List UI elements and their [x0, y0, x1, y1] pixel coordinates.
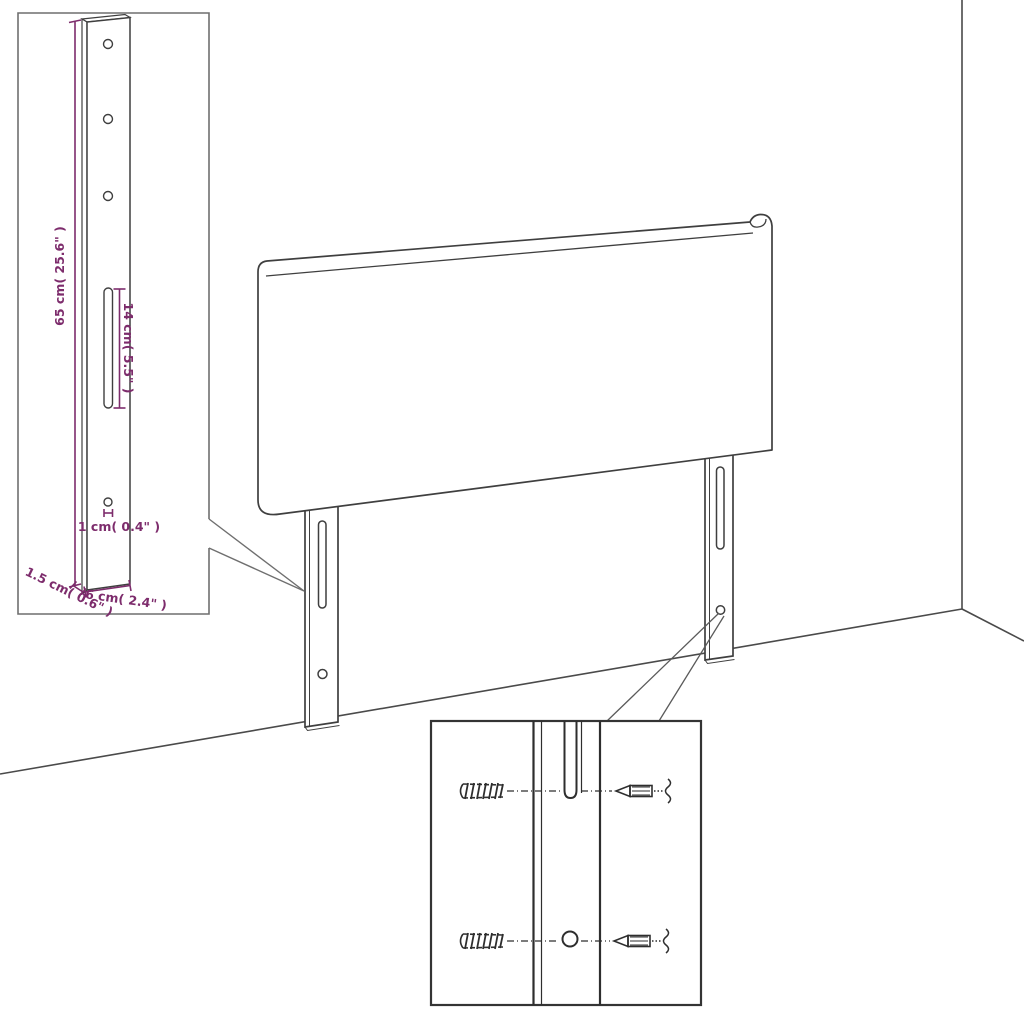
bracket-detail-inset: 65 cm( 25.6" ) 14 cm( 5.5" ) 1 cm( 0.4" … — [18, 13, 209, 619]
floor-edge-line — [962, 609, 1024, 641]
callout-line-right — [659, 616, 724, 721]
inset2-border — [431, 721, 701, 1005]
panel-outline — [258, 214, 772, 514]
headboard-panel — [258, 214, 772, 514]
screw-detail-inset — [431, 721, 701, 1005]
hole-size-label: 1 cm( 0.4" ) — [78, 519, 160, 534]
product-diagram: 65 cm( 25.6" ) 14 cm( 5.5" ) 1 cm( 0.4" … — [0, 0, 1024, 1024]
diagram-canvas: 65 cm( 25.6" ) 14 cm( 5.5" ) 1 cm( 0.4" … — [0, 0, 1024, 1024]
callout-bracket-inset-to-left-leg — [209, 519, 304, 591]
slot-length-label: 14 cm( 5.5" ) — [121, 303, 136, 394]
headboard-right-leg — [705, 445, 735, 664]
bracket-height-label: 65 cm( 25.6" ) — [52, 226, 67, 326]
